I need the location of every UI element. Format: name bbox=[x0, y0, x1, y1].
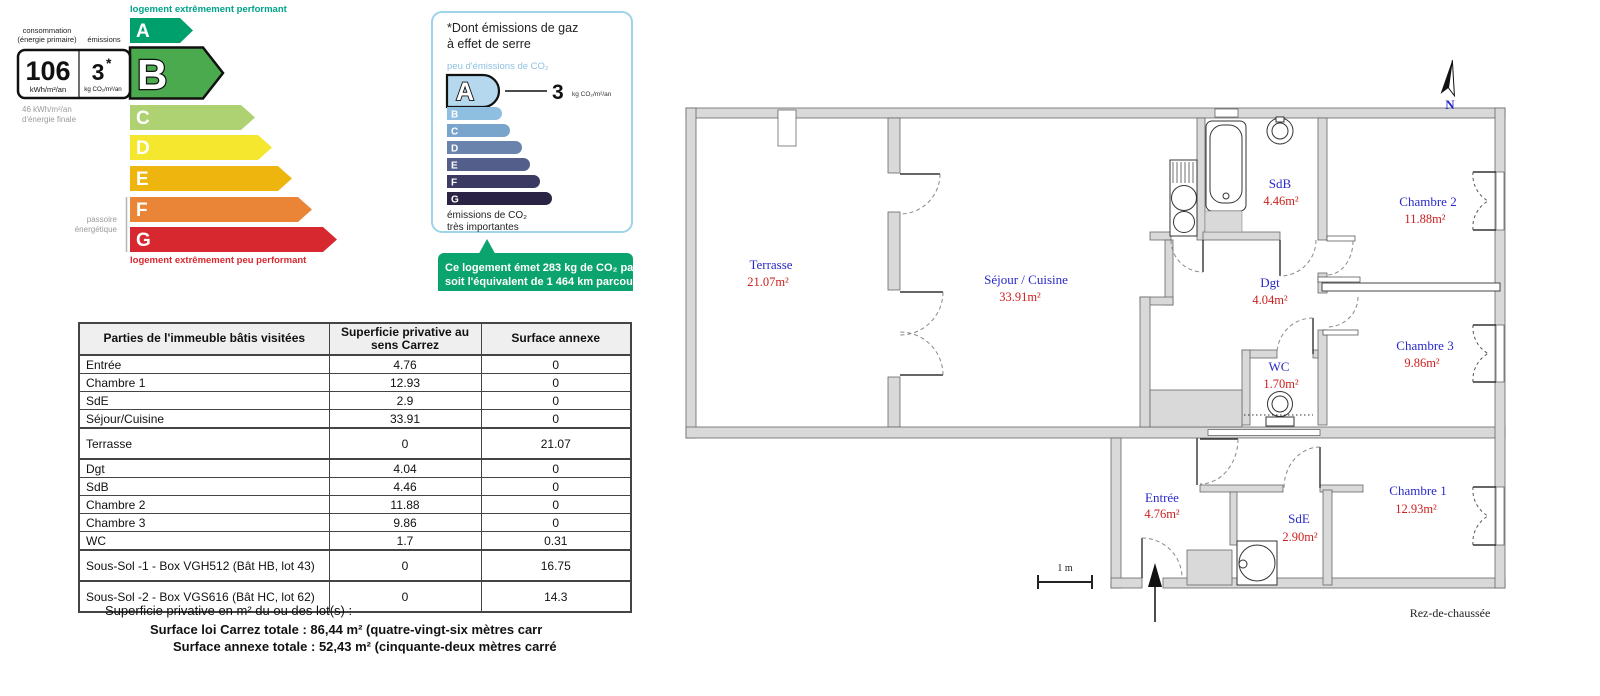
scale-bar bbox=[1038, 575, 1092, 589]
room-area: 33.91m² bbox=[999, 290, 1041, 304]
dpe-top-label: logement extrêmement performant bbox=[130, 4, 288, 15]
dpe-co2-unit: kg CO₂/m²/an bbox=[84, 86, 122, 93]
table-row: Entrée4.760 bbox=[79, 355, 631, 374]
room-name: Terrasse bbox=[749, 257, 792, 272]
ges-callout-text3: en voiture. bbox=[445, 290, 501, 291]
room-area: 21.07m² bbox=[747, 275, 789, 289]
table-row: Chambre 211.880 bbox=[79, 496, 631, 514]
room-area: 2.90m² bbox=[1282, 530, 1318, 544]
cell-annexe: 0 bbox=[481, 478, 631, 496]
north-label: N bbox=[1445, 97, 1455, 112]
dpe-letter-d: D bbox=[136, 138, 150, 159]
ges-emissions-chart: *Dont émissions de gaz à effet de serre … bbox=[425, 5, 640, 291]
room-name: Chambre 3 bbox=[1396, 338, 1453, 353]
ges-bar-e bbox=[447, 158, 530, 171]
ges-letter-b: B bbox=[451, 110, 458, 121]
carrez-total: Surface loi Carrez totale : 86,44 m² (qu… bbox=[150, 622, 636, 637]
room-name: Chambre 2 bbox=[1399, 194, 1456, 209]
dpe-report-page: { "dpe": { "top_label": "logement extrêm… bbox=[0, 0, 1600, 696]
window-chambre1 bbox=[1496, 487, 1504, 545]
ges-letter-c: C bbox=[451, 127, 458, 138]
ges-callout-text: Ce logement émet 283 kg de CO₂ par an, bbox=[445, 262, 640, 274]
dpe-letter-e: E bbox=[136, 169, 149, 190]
cell-annexe: 0.31 bbox=[481, 532, 631, 551]
room-name: Dgt bbox=[1260, 275, 1280, 290]
ges-letter-e: E bbox=[451, 161, 458, 172]
window-posts bbox=[1473, 172, 1496, 545]
dpe-energy-value: 106 bbox=[25, 56, 70, 86]
cell-annexe: 0 bbox=[481, 410, 631, 429]
dpe-arrow-g bbox=[130, 227, 337, 252]
cell-name: Séjour/Cuisine bbox=[79, 410, 329, 429]
cell-carrez: 1.7 bbox=[329, 532, 481, 551]
summary-intro: Superficie privative en m² du ou des lot… bbox=[105, 603, 636, 618]
dpe-energy-unit: kWh/m²/an bbox=[30, 85, 66, 94]
dpe-bottom-label: logement extrêmement peu performant bbox=[130, 255, 307, 266]
header-annexe: Surface annexe bbox=[481, 323, 631, 355]
ges-letter-a: A bbox=[456, 78, 474, 106]
ges-value: 3 bbox=[552, 81, 564, 104]
door-stub bbox=[1327, 236, 1355, 241]
room-name: Entrée bbox=[1145, 490, 1179, 505]
ges-bar-d bbox=[447, 141, 522, 154]
duct-block bbox=[1205, 211, 1242, 232]
table-row: Séjour/Cuisine33.910 bbox=[79, 410, 631, 429]
ges-high-label: émissions de CO₂ bbox=[447, 210, 527, 221]
cell-carrez: 0 bbox=[329, 550, 481, 581]
cell-carrez: 11.88 bbox=[329, 496, 481, 514]
room-area: 4.46m² bbox=[1263, 194, 1299, 208]
table-row: SdE2.90 bbox=[79, 392, 631, 410]
room-name: Chambre 1 bbox=[1389, 483, 1446, 498]
plan-walls bbox=[686, 108, 1505, 588]
cell-annexe: 0 bbox=[481, 496, 631, 514]
cell-name: Terrasse bbox=[79, 428, 329, 459]
table-row: Terrasse021.07 bbox=[79, 428, 631, 459]
header-carrez: Superficie privative au sens Carrez bbox=[329, 323, 481, 355]
dpe-passoire-label: passoire bbox=[87, 215, 118, 224]
door-stub bbox=[1323, 330, 1358, 335]
cell-carrez: 4.46 bbox=[329, 478, 481, 496]
ges-letter-g: G bbox=[451, 195, 459, 206]
terrasse-pillar bbox=[778, 110, 796, 146]
scale-label: 1 m bbox=[1057, 563, 1073, 574]
kitchen-sink bbox=[1172, 186, 1197, 211]
floor-label: Rez-de-chaussée bbox=[1410, 606, 1491, 620]
ges-title2: à effet de serre bbox=[447, 37, 531, 51]
cell-name: SdB bbox=[79, 478, 329, 496]
cell-annexe: 0 bbox=[481, 392, 631, 410]
ges-letter-f: F bbox=[451, 178, 457, 189]
cell-name: SdE bbox=[79, 392, 329, 410]
ges-value-unit: kg CO₂/m²/an bbox=[572, 91, 612, 98]
cell-carrez: 2.9 bbox=[329, 392, 481, 410]
cell-carrez: 9.86 bbox=[329, 514, 481, 532]
kitchen-sink-small bbox=[1174, 212, 1195, 233]
dpe-final-energy-note2: d'énergie finale bbox=[22, 115, 77, 124]
table-row: SdB4.460 bbox=[79, 478, 631, 496]
north-arrow-icon bbox=[1441, 59, 1460, 96]
room-area: 4.04m² bbox=[1252, 293, 1288, 307]
room-name: WC bbox=[1269, 359, 1290, 374]
window-chambre3 bbox=[1496, 325, 1504, 382]
dpe-passoire-label2: énergétique bbox=[75, 225, 118, 234]
cell-name: Chambre 1 bbox=[79, 374, 329, 392]
dpe-letter-g: G bbox=[136, 230, 151, 251]
cell-carrez: 33.91 bbox=[329, 410, 481, 429]
dpe-energy-chart: logement extrêmement performant consomma… bbox=[0, 0, 360, 280]
dpe-arrow-d bbox=[130, 135, 272, 160]
room-name: Séjour / Cuisine bbox=[984, 272, 1068, 287]
cell-annexe: 0 bbox=[481, 374, 631, 392]
floor-plan: N 1 m Terrasse 21.07m² Séjour / Cuisine … bbox=[660, 55, 1600, 655]
dpe-letter-b: B bbox=[137, 51, 167, 98]
cell-annexe: 0 bbox=[481, 514, 631, 532]
door-stub bbox=[1318, 277, 1360, 282]
ges-low-label: peu d'émissions de CO₂ bbox=[447, 61, 549, 72]
entry-arrow-icon bbox=[1148, 563, 1162, 622]
window-chambre2 bbox=[1496, 172, 1504, 230]
cell-name: Chambre 3 bbox=[79, 514, 329, 532]
cell-carrez: 4.04 bbox=[329, 459, 481, 478]
table-header-row: Parties de l'immeuble bâtis visitées Sup… bbox=[79, 323, 631, 355]
cell-carrez: 0 bbox=[329, 428, 481, 459]
cell-annexe: 16.75 bbox=[481, 550, 631, 581]
window-leaves bbox=[1473, 172, 1488, 545]
window-top-wall bbox=[1215, 109, 1238, 117]
table-row: WC1.70.31 bbox=[79, 532, 631, 551]
surface-summary: Superficie privative en m² du ou des lot… bbox=[0, 598, 636, 660]
carrez-surface-table: Parties de l'immeuble bâtis visitées Sup… bbox=[78, 322, 632, 613]
dpe-letter-c: C bbox=[136, 108, 150, 129]
table-row: Chambre 112.930 bbox=[79, 374, 631, 392]
annexe-total: Surface annexe totale : 52,43 m² (cinqua… bbox=[173, 639, 636, 654]
cell-name: WC bbox=[79, 532, 329, 551]
cell-carrez: 12.93 bbox=[329, 374, 481, 392]
header-parties: Parties de l'immeuble bâtis visitées bbox=[79, 323, 329, 355]
ges-title: *Dont émissions de gaz bbox=[447, 21, 578, 35]
table-row: Chambre 39.860 bbox=[79, 514, 631, 532]
room-name: SdB bbox=[1269, 176, 1292, 191]
room-area: 12.93m² bbox=[1395, 502, 1437, 516]
cell-annexe: 0 bbox=[481, 355, 631, 374]
dpe-co2-value: 3 bbox=[92, 59, 105, 85]
dpe-letter-a: A bbox=[136, 21, 150, 42]
cell-name: Sous-Sol -1 - Box VGH512 (Bât HB, lot 43… bbox=[79, 550, 329, 581]
cell-name: Entrée bbox=[79, 355, 329, 374]
cell-annexe: 0 bbox=[481, 459, 631, 478]
dpe-arrow-f bbox=[130, 197, 312, 222]
ges-callout-text2: soit l'équivalent de 1 464 km parcourus bbox=[445, 276, 640, 288]
dpe-emissions-header: émissions bbox=[87, 35, 121, 44]
room-name: SdE bbox=[1288, 511, 1310, 526]
dpe-consumption-header2: (énergie primaire) bbox=[17, 35, 77, 44]
dpe-letter-f: F bbox=[136, 200, 148, 221]
room-area: 11.88m² bbox=[1404, 212, 1445, 226]
table-row: Dgt4.040 bbox=[79, 459, 631, 478]
cell-name: Dgt bbox=[79, 459, 329, 478]
room-area: 9.86m² bbox=[1404, 356, 1440, 370]
dpe-final-energy-note: 46 kWh/m²/an bbox=[22, 105, 72, 114]
ges-letter-d: D bbox=[451, 144, 458, 155]
ges-bar-f bbox=[447, 175, 540, 188]
cell-carrez: 4.76 bbox=[329, 355, 481, 374]
wall-ch2-ch3-divider bbox=[1322, 283, 1500, 291]
room-area: 1.70m² bbox=[1263, 377, 1299, 391]
dpe-arrow-e bbox=[130, 166, 292, 191]
table-row: Sous-Sol -1 - Box VGH512 (Bât HB, lot 43… bbox=[79, 550, 631, 581]
cell-name: Chambre 2 bbox=[79, 496, 329, 514]
dpe-consumption-header: consommation bbox=[23, 26, 72, 35]
ges-bar-g bbox=[447, 192, 552, 205]
room-area: 4.76m² bbox=[1144, 507, 1180, 521]
dpe-co2-star: * bbox=[106, 55, 112, 71]
cell-annexe: 21.07 bbox=[481, 428, 631, 459]
ges-high-label2: très importantes bbox=[447, 222, 519, 233]
